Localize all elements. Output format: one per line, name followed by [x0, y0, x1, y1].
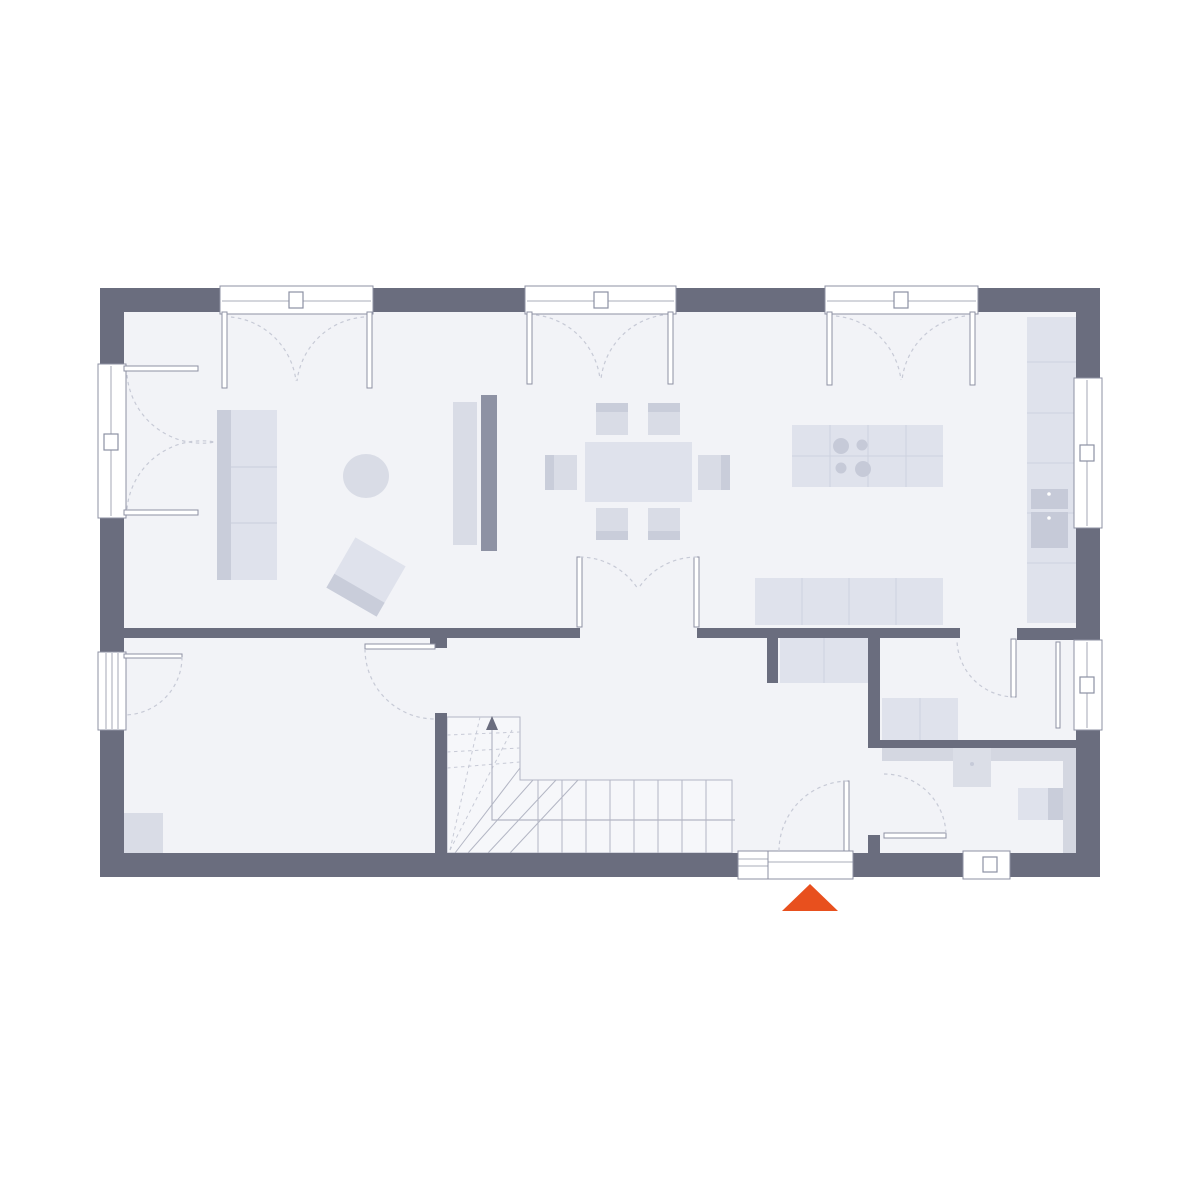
window-leaf [1056, 642, 1060, 728]
window-symbol [1080, 445, 1094, 461]
door-leaf-utility [884, 833, 946, 838]
wall-right-1 [1076, 288, 1100, 378]
coffee-table [343, 454, 389, 498]
window-symbol [104, 434, 118, 450]
built-in-oven [1031, 489, 1068, 509]
wall-interior-living-hall [112, 628, 580, 638]
door-leaf-wc [1011, 639, 1016, 697]
bottom-left-cabinet [123, 813, 163, 855]
window-symbol [983, 857, 997, 872]
wall-interior-kitchen-hall [697, 628, 960, 638]
utility-counter-right [1063, 761, 1076, 853]
sofa-backrest [217, 410, 231, 580]
wall-top-3 [676, 288, 825, 312]
entrance-door-opening [768, 851, 853, 879]
utility-sink [953, 748, 991, 787]
wall-bottom-2 [853, 853, 963, 877]
wall-entrance-stub [868, 835, 880, 853]
wall-hall-wc [868, 638, 880, 742]
tv-lowboard [453, 402, 477, 545]
oven-knob [1047, 492, 1051, 496]
window-leaf [124, 654, 182, 658]
window-symbol [594, 292, 608, 308]
wall-bottom-1 [100, 853, 738, 877]
dining-chair-back [648, 531, 680, 540]
window-leaf [222, 312, 227, 388]
window-leaf [827, 312, 832, 385]
dining-chair-back [596, 531, 628, 540]
cooktop-burner [836, 463, 847, 474]
utility-sink-drain [970, 762, 974, 766]
window-symbol [289, 292, 303, 308]
wall-right-3 [1076, 730, 1100, 853]
cooktop-burner [857, 440, 868, 451]
floor-plan-page [0, 0, 1200, 1200]
door-leaf-entrance [844, 781, 849, 851]
wall-left-3 [100, 728, 124, 853]
window-symbol [1080, 677, 1094, 693]
door-leaf-double [577, 557, 582, 627]
wall-hall-stub [767, 638, 778, 683]
window-leaf [970, 312, 975, 385]
wall-interior-kitchen-wc [1017, 628, 1076, 640]
window-leaf [124, 366, 198, 371]
entrance-marker-triangle [782, 884, 838, 911]
dryer [1048, 788, 1063, 820]
window-leaf [527, 312, 532, 384]
wall-bottom-3 [1010, 853, 1100, 877]
floor-plan-svg [0, 0, 1200, 1200]
dining-chair-back [721, 455, 730, 490]
wall-wc-utility [868, 740, 1077, 748]
door-leaf-room [365, 644, 435, 649]
dining-chair-back [648, 403, 680, 412]
oven-knob [1047, 516, 1051, 520]
dining-table [585, 442, 692, 502]
dining-chair-back [545, 455, 554, 490]
wall-right-2 [1076, 528, 1100, 640]
wall-staircase [435, 713, 447, 853]
window-symbol [894, 292, 908, 308]
door-leaf-double [694, 557, 699, 627]
cooktop-burner [833, 438, 849, 454]
kitchen-tall-counter [1027, 317, 1078, 623]
tv-screen [481, 395, 497, 551]
window-leaf [124, 510, 198, 515]
entrance-sidelight [738, 851, 768, 879]
cooktop-burner [855, 461, 871, 477]
window-leaf [367, 312, 372, 388]
dining-chair-back [596, 403, 628, 412]
wall-left-1 [100, 288, 124, 365]
wall-top-2 [373, 288, 525, 312]
window-leaf [668, 312, 673, 384]
